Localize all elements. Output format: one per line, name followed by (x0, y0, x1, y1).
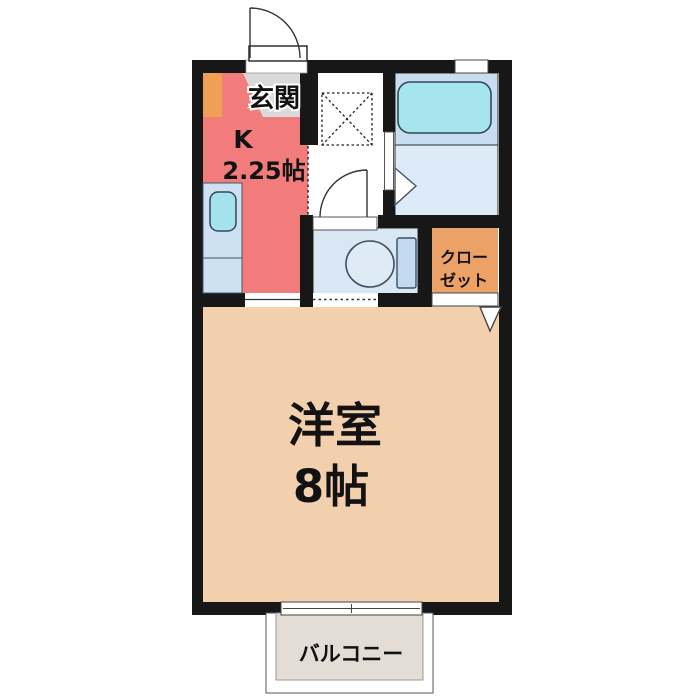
kitchen-size-label: 2.25帖 (222, 157, 305, 185)
room-main-floor (203, 306, 499, 603)
entrance-door-panel (249, 46, 307, 61)
wall-under-sink (203, 293, 245, 307)
kitchen-appliance-unit (203, 73, 222, 117)
sink-basin (210, 192, 236, 231)
kitchen-type-label: K (233, 125, 254, 154)
toilet-tank (397, 238, 416, 288)
bathtub (398, 82, 491, 133)
closet-label-line2: ゼット (440, 271, 488, 290)
genkan-label: 玄関 (248, 83, 300, 114)
main-room-size-label: 8帖 (293, 460, 369, 513)
balcony-label: バルコニー (299, 642, 404, 666)
toilet (346, 238, 416, 288)
kitchen-sink-unit (203, 183, 242, 293)
wall-toilet-left (300, 215, 313, 307)
entrance-opening (246, 60, 307, 73)
closet-label-line1: クロー (440, 248, 488, 267)
washing-machine-area (322, 93, 372, 145)
bath-pocket-door (385, 132, 394, 190)
wall-left (192, 60, 203, 615)
wall-washroom-bath-upper (383, 73, 395, 132)
wall-under-toilet (378, 293, 432, 307)
toilet-bowl (346, 241, 394, 287)
floorplan-drawing: 玄関 K 2.25帖 洋室 8帖 クロー ゼット バルコニー (0, 0, 700, 700)
wall-right (499, 60, 512, 615)
toilet-doorway (313, 217, 377, 230)
floorplan-canvas: 玄関 K 2.25帖 洋室 8帖 クロー ゼット バルコニー (0, 0, 700, 700)
closet-sliding-door (432, 293, 498, 306)
wall-washroom-bath-lower (383, 190, 395, 216)
bath-window (455, 60, 488, 73)
main-room-label: 洋室 (288, 399, 382, 454)
wall-under-bath (378, 215, 499, 228)
